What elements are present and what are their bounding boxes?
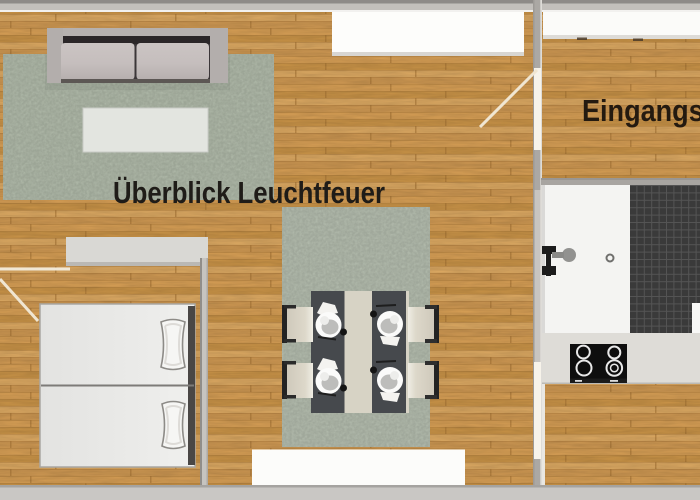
svg-text:Eingangsbereich: Eingangsbereich	[582, 93, 700, 128]
svg-text:Überblick Leuchtfeuer: Überblick Leuchtfeuer	[113, 175, 385, 210]
